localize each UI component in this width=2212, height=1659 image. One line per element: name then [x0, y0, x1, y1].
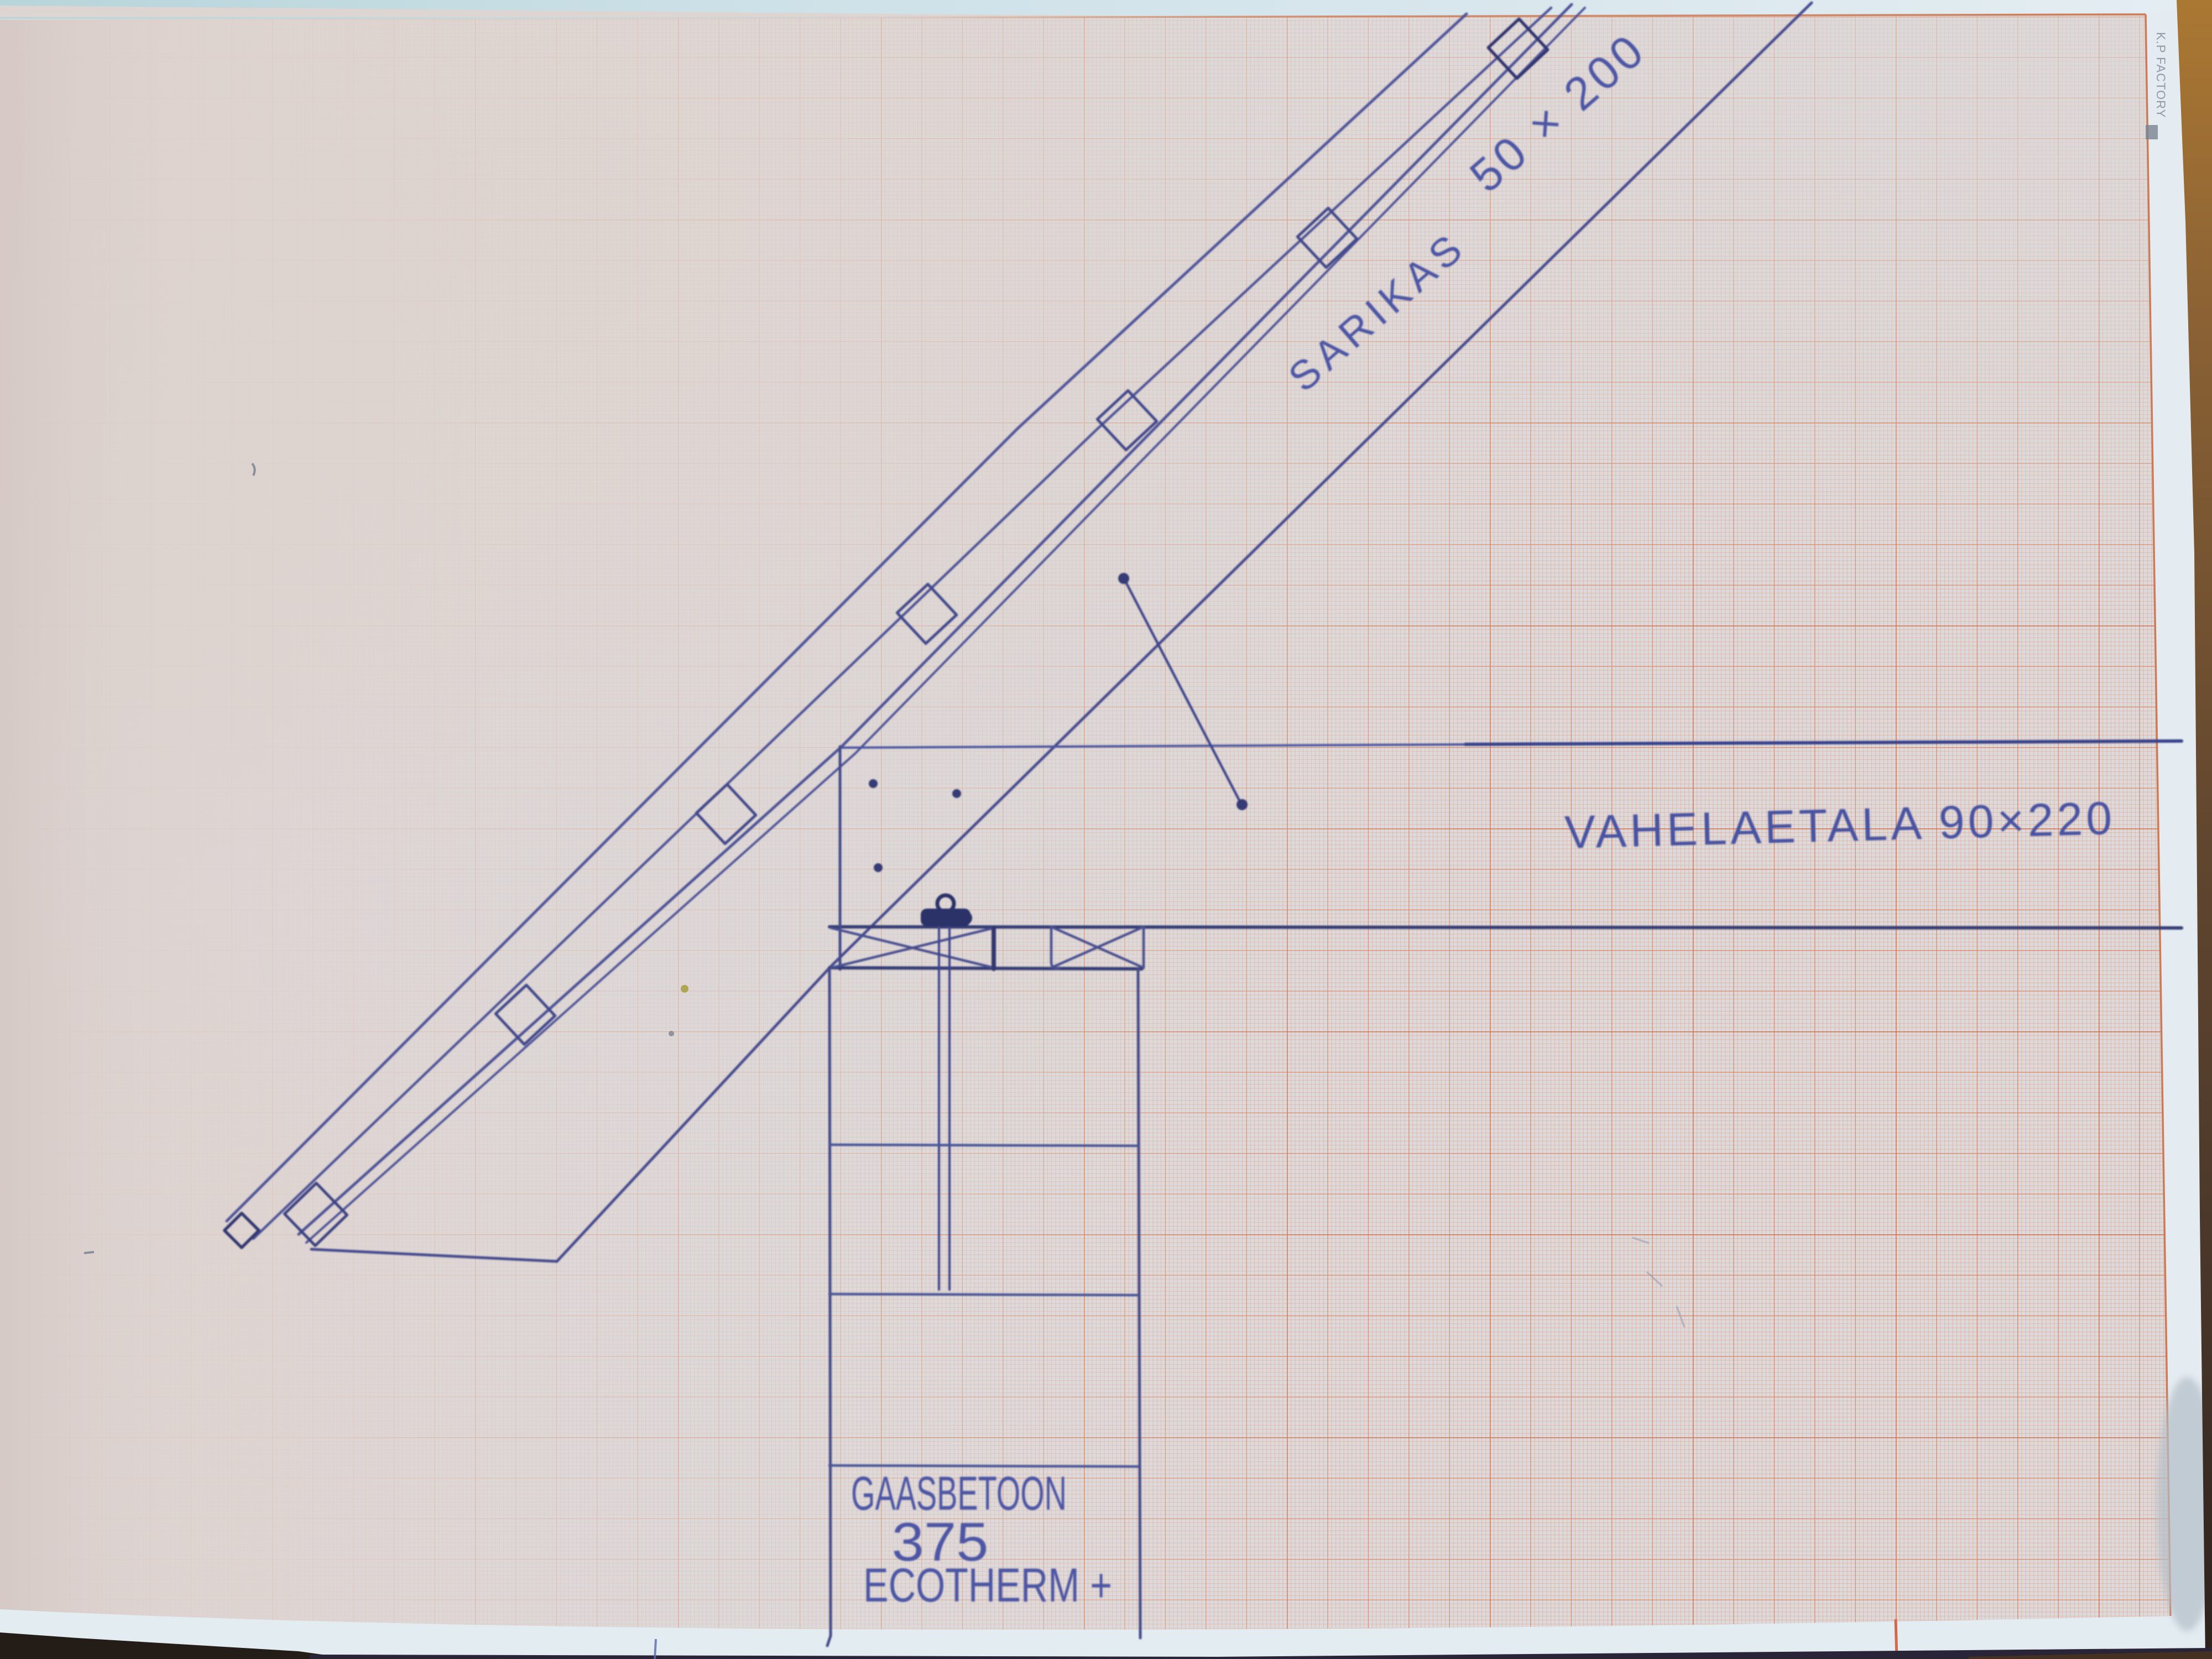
svg-text:K.P FACTORY: K.P FACTORY	[2154, 32, 2168, 118]
svg-text:ECOTHERM +: ECOTHERM +	[863, 1559, 1112, 1612]
